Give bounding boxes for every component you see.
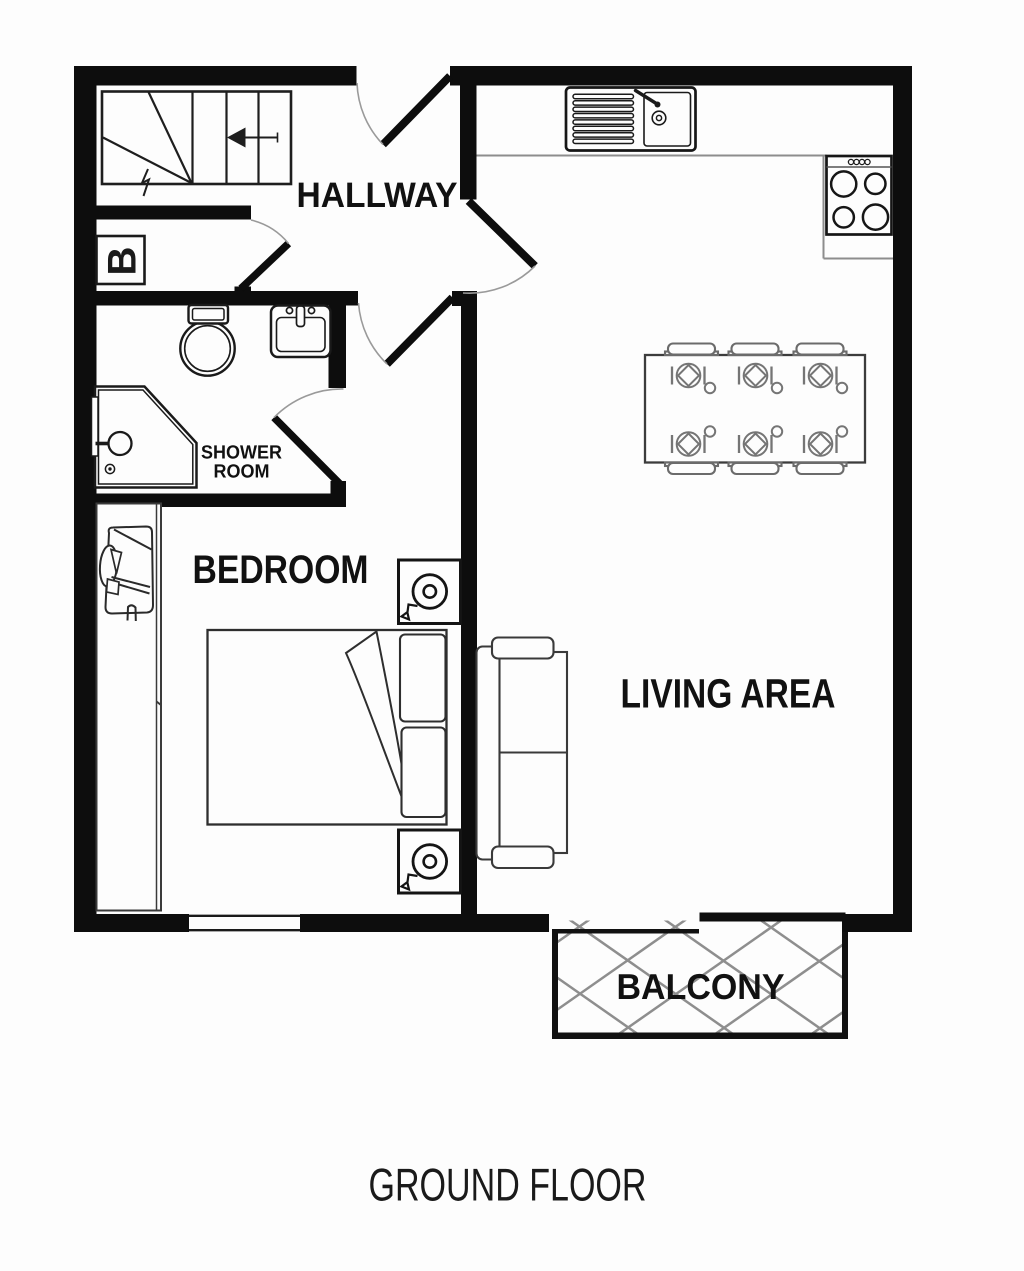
svg-text:GROUND FLOOR: GROUND FLOOR: [369, 1159, 647, 1211]
svg-text:SHOWER: SHOWER: [201, 443, 282, 464]
svg-text:B: B: [101, 247, 145, 276]
svg-text:BEDROOM: BEDROOM: [193, 548, 369, 592]
svg-text:BALCONY: BALCONY: [617, 966, 785, 1007]
svg-text:ROOM: ROOM: [214, 462, 270, 483]
svg-text:HALLWAY: HALLWAY: [297, 175, 458, 215]
svg-text:LIVING AREA: LIVING AREA: [621, 671, 836, 717]
